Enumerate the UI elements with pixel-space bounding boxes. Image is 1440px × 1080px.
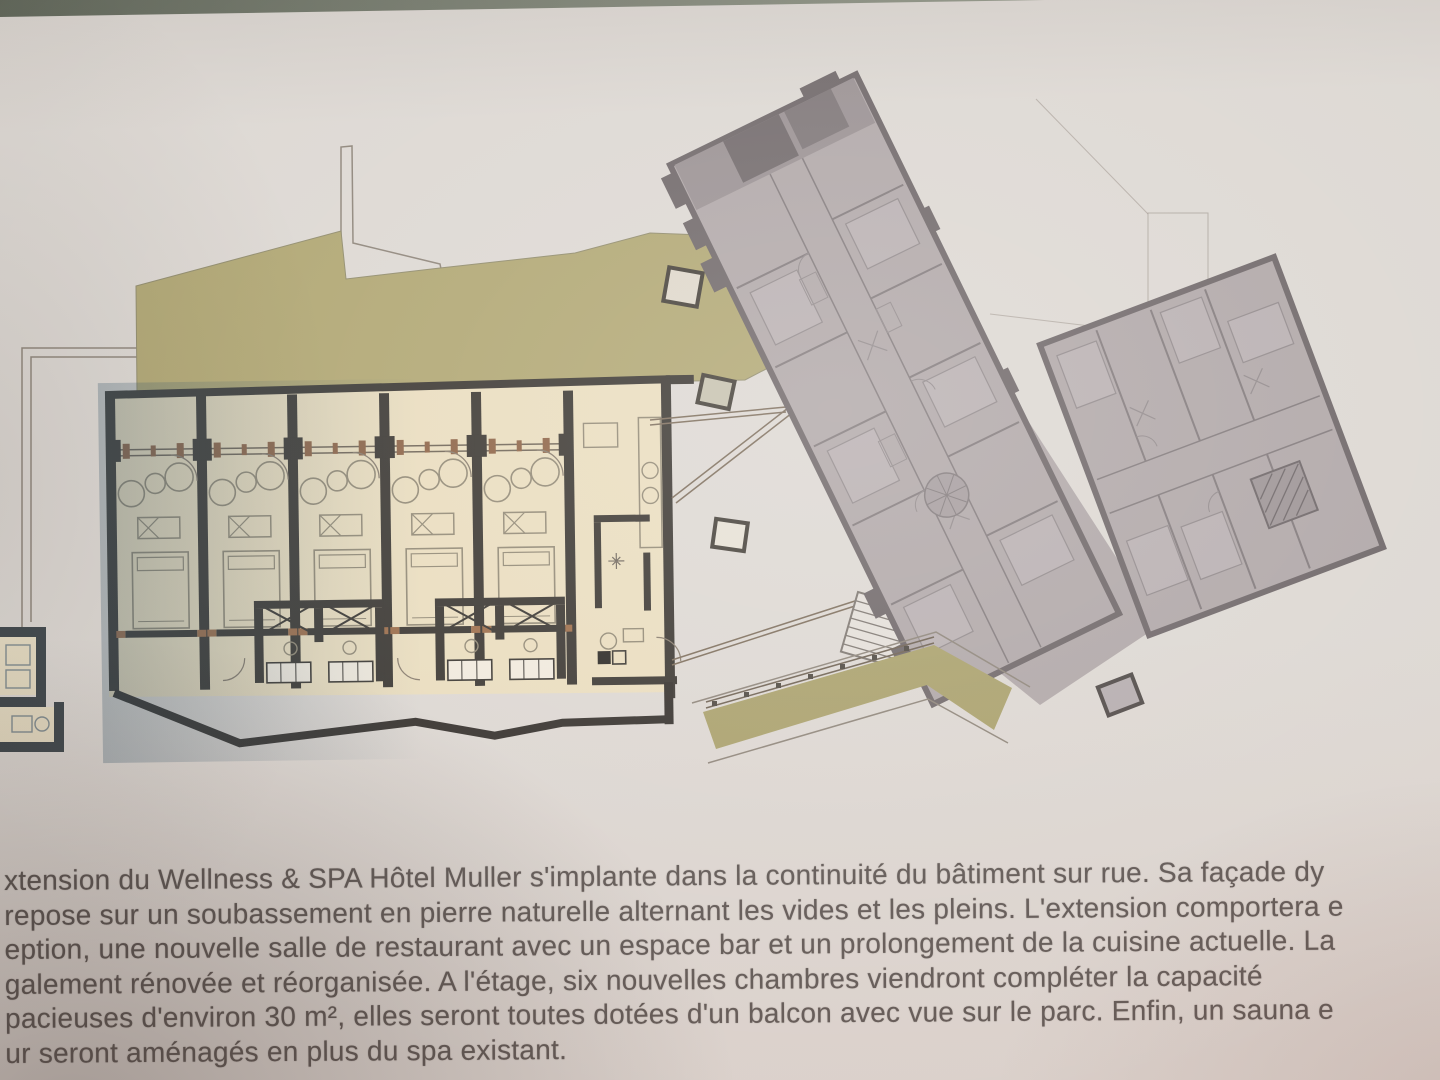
- photo-color-cast: [98, 379, 423, 763]
- column-marker: [697, 375, 734, 409]
- photographed-plan-page: xtension du Wellness & SPA Hôtel Muller …: [0, 0, 1440, 1080]
- column-marker: [712, 519, 748, 551]
- column-marker: [663, 267, 702, 306]
- description-paragraph: xtension du Wellness & SPA Hôtel Muller …: [4, 853, 1440, 1072]
